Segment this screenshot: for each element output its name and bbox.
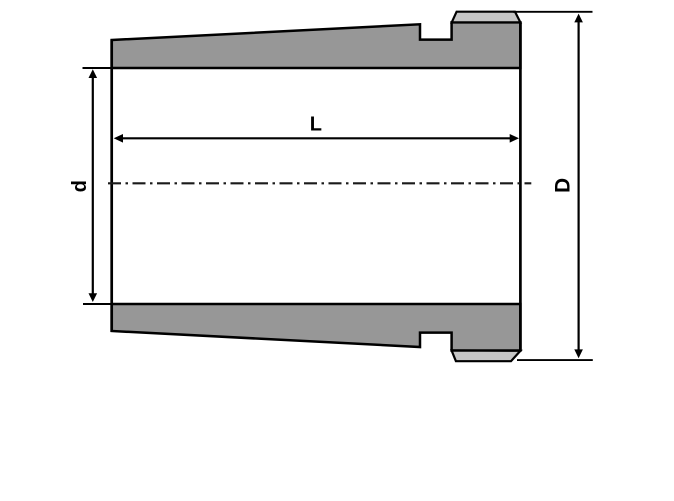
- svg-text:D: D: [551, 178, 574, 193]
- svg-text:d: d: [69, 180, 91, 192]
- svg-text:L: L: [310, 114, 322, 136]
